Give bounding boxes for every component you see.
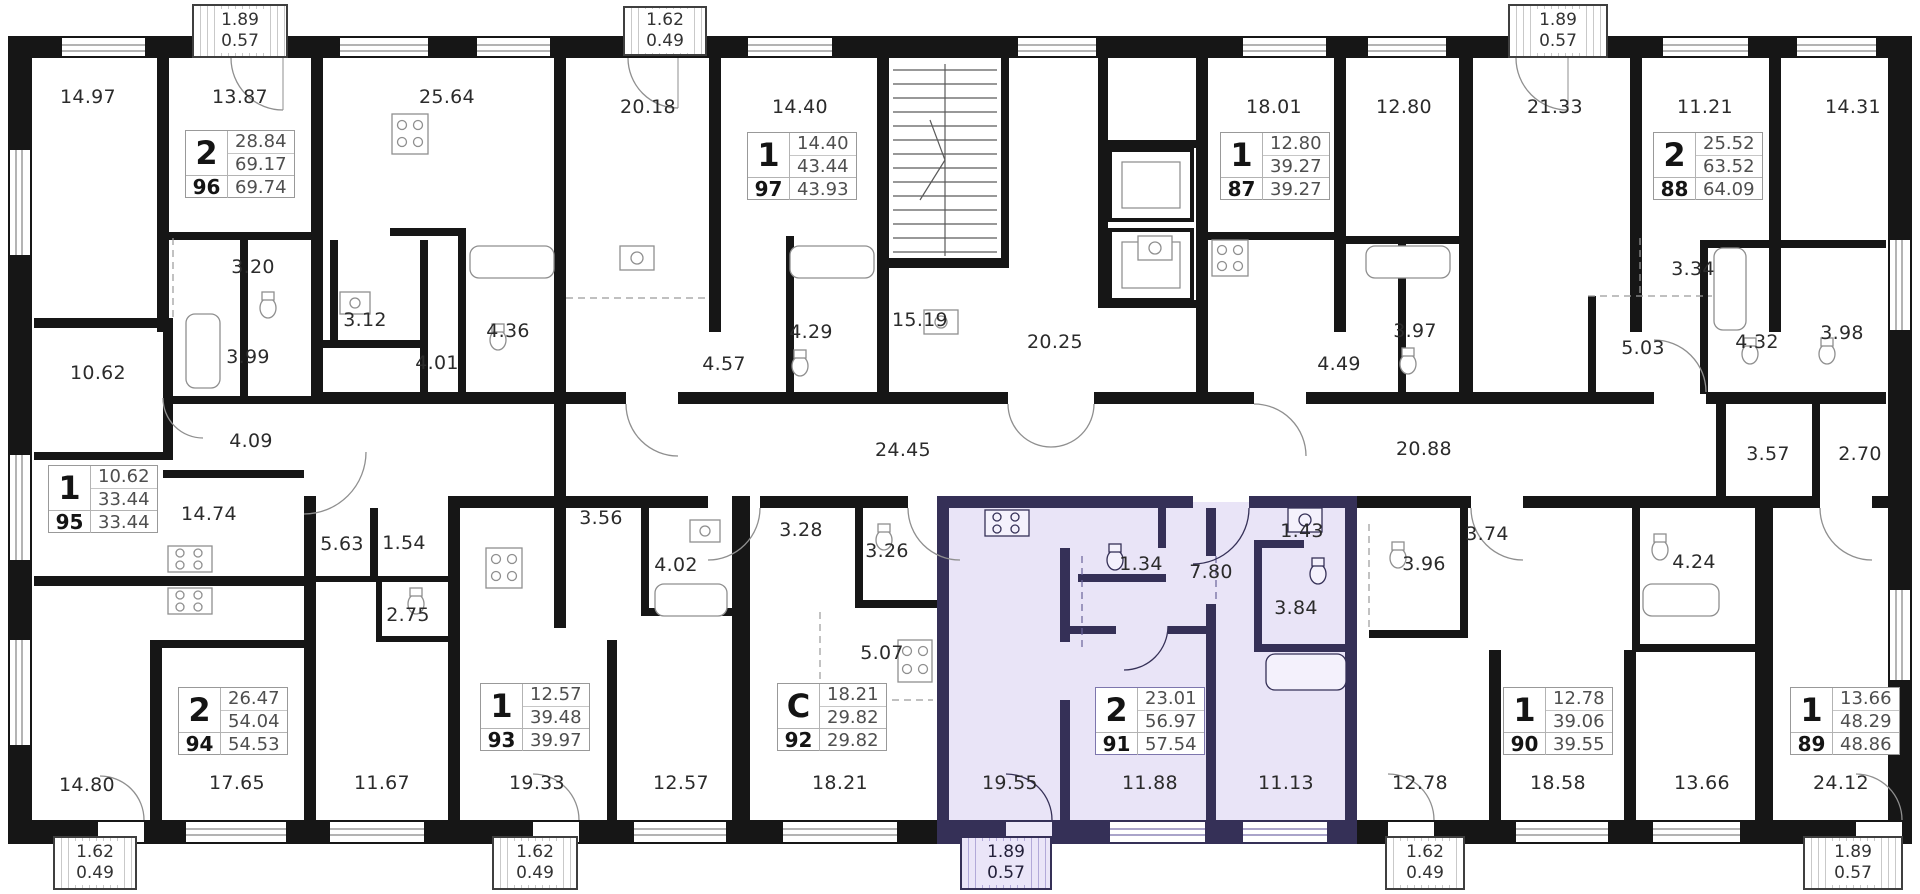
apartment-areas: 12.8039.27 bbox=[1263, 133, 1329, 178]
apartment-room-count: 1 bbox=[1221, 133, 1263, 178]
apartment-number: 97 bbox=[748, 178, 790, 200]
apartment-total-area: 39.97 bbox=[523, 729, 589, 751]
apartment-areas: 26.4754.04 bbox=[221, 688, 287, 733]
apartment-boxes-layer: 228.8469.179669.74114.4043.449743.93112.… bbox=[0, 0, 1920, 894]
apartment-info-90[interactable]: 112.7839.069039.55 bbox=[1503, 687, 1613, 755]
apartment-room-count: 1 bbox=[1504, 688, 1546, 733]
apartment-total-area: 57.54 bbox=[1138, 733, 1204, 755]
apartment-area: 63.52 bbox=[1696, 156, 1762, 178]
apartment-area: 54.04 bbox=[221, 711, 287, 733]
apartment-total-area: 69.74 bbox=[228, 176, 294, 198]
apartment-area: 29.82 bbox=[820, 707, 886, 729]
apartment-room-count: 1 bbox=[748, 133, 790, 178]
apartment-total-area: 64.09 bbox=[1696, 178, 1762, 200]
apartment-areas: 25.5263.52 bbox=[1696, 133, 1762, 178]
apartment-room-count: 2 bbox=[1096, 688, 1138, 733]
apartment-number: 92 bbox=[778, 729, 820, 751]
apartment-info-92[interactable]: C18.2129.829229.82 bbox=[777, 683, 887, 751]
apartment-living-area: 18.21 bbox=[820, 684, 886, 707]
apartment-total-area: 48.86 bbox=[1833, 733, 1899, 755]
apartment-living-area: 10.62 bbox=[91, 466, 157, 489]
apartment-room-count: C bbox=[778, 684, 820, 729]
apartment-living-area: 12.80 bbox=[1263, 133, 1329, 156]
apartment-areas: 10.6233.44 bbox=[91, 466, 157, 511]
apartment-area: 69.17 bbox=[228, 154, 294, 176]
apartment-living-area: 28.84 bbox=[228, 131, 294, 154]
apartment-areas: 13.6648.29 bbox=[1833, 688, 1899, 733]
apartment-areas: 23.0156.97 bbox=[1138, 688, 1204, 733]
apartment-room-count: 1 bbox=[481, 684, 523, 729]
apartment-living-area: 12.57 bbox=[523, 684, 589, 707]
apartment-number: 90 bbox=[1504, 733, 1546, 755]
apartment-number: 88 bbox=[1654, 178, 1696, 200]
apartment-areas: 12.7839.06 bbox=[1546, 688, 1612, 733]
apartment-living-area: 23.01 bbox=[1138, 688, 1204, 711]
apartment-number: 93 bbox=[481, 729, 523, 751]
apartment-area: 39.48 bbox=[523, 707, 589, 729]
apartment-living-area: 12.78 bbox=[1546, 688, 1612, 711]
apartment-total-area: 39.27 bbox=[1263, 178, 1329, 200]
apartment-total-area: 54.53 bbox=[221, 733, 287, 755]
apartment-info-89[interactable]: 113.6648.298948.86 bbox=[1790, 687, 1900, 755]
apartment-number: 95 bbox=[49, 511, 91, 533]
apartment-room-count: 2 bbox=[186, 131, 228, 176]
apartment-areas: 28.8469.17 bbox=[228, 131, 294, 176]
apartment-number: 96 bbox=[186, 176, 228, 198]
apartment-area: 56.97 bbox=[1138, 711, 1204, 733]
apartment-room-count: 2 bbox=[1654, 133, 1696, 178]
apartment-info-94[interactable]: 226.4754.049454.53 bbox=[178, 687, 288, 755]
apartment-info-91[interactable]: 223.0156.979157.54 bbox=[1095, 687, 1205, 755]
apartment-area: 39.27 bbox=[1263, 156, 1329, 178]
apartment-info-87[interactable]: 112.8039.278739.27 bbox=[1220, 132, 1330, 200]
apartment-areas: 12.5739.48 bbox=[523, 684, 589, 729]
apartment-info-96[interactable]: 228.8469.179669.74 bbox=[185, 130, 295, 198]
apartment-room-count: 1 bbox=[1791, 688, 1833, 733]
apartment-area: 48.29 bbox=[1833, 711, 1899, 733]
apartment-living-area: 13.66 bbox=[1833, 688, 1899, 711]
apartment-number: 94 bbox=[179, 733, 221, 755]
apartment-total-area: 39.55 bbox=[1546, 733, 1612, 755]
apartment-total-area: 43.93 bbox=[790, 178, 856, 200]
apartment-info-88[interactable]: 225.5263.528864.09 bbox=[1653, 132, 1763, 200]
apartment-area: 33.44 bbox=[91, 489, 157, 511]
apartment-areas: 14.4043.44 bbox=[790, 133, 856, 178]
apartment-room-count: 2 bbox=[179, 688, 221, 733]
apartment-living-area: 14.40 bbox=[790, 133, 856, 156]
apartment-living-area: 25.52 bbox=[1696, 133, 1762, 156]
apartment-info-97[interactable]: 114.4043.449743.93 bbox=[747, 132, 857, 200]
apartment-living-area: 26.47 bbox=[221, 688, 287, 711]
apartment-number: 91 bbox=[1096, 733, 1138, 755]
apartment-area: 39.06 bbox=[1546, 711, 1612, 733]
floorplan-stage: 1.890.571.620.491.890.571.620.491.620.49… bbox=[0, 0, 1920, 894]
apartment-number: 87 bbox=[1221, 178, 1263, 200]
apartment-total-area: 33.44 bbox=[91, 511, 157, 533]
apartment-areas: 18.2129.82 bbox=[820, 684, 886, 729]
apartment-info-93[interactable]: 112.5739.489339.97 bbox=[480, 683, 590, 751]
apartment-info-95[interactable]: 110.6233.449533.44 bbox=[48, 465, 158, 533]
apartment-room-count: 1 bbox=[49, 466, 91, 511]
apartment-number: 89 bbox=[1791, 733, 1833, 755]
apartment-area: 43.44 bbox=[790, 156, 856, 178]
apartment-total-area: 29.82 bbox=[820, 729, 886, 751]
